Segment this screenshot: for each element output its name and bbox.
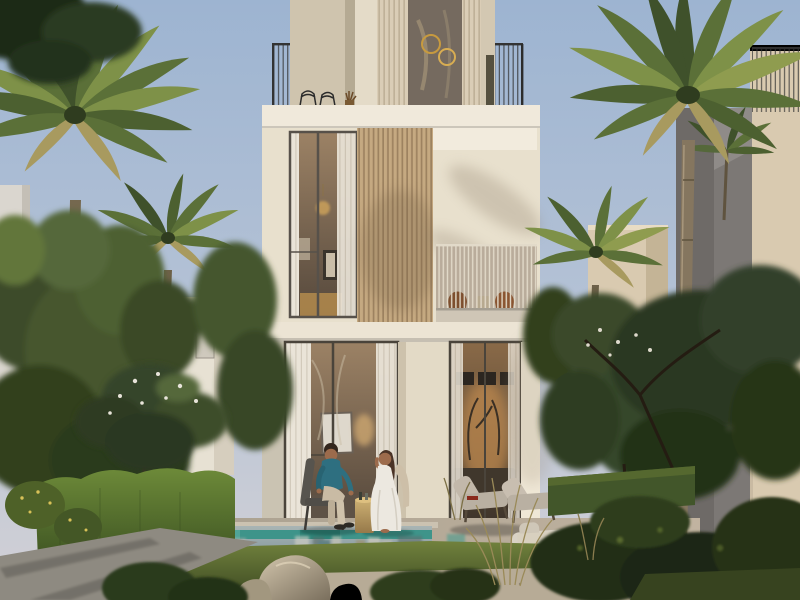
parapet [262, 105, 540, 128]
second-floor-window [290, 132, 357, 317]
architectural-render [0, 0, 800, 600]
main-villa [262, 0, 558, 522]
second-floor [262, 128, 550, 322]
balcony [436, 244, 540, 322]
penthouse-glass [408, 0, 462, 112]
third-floor [290, 0, 495, 112]
